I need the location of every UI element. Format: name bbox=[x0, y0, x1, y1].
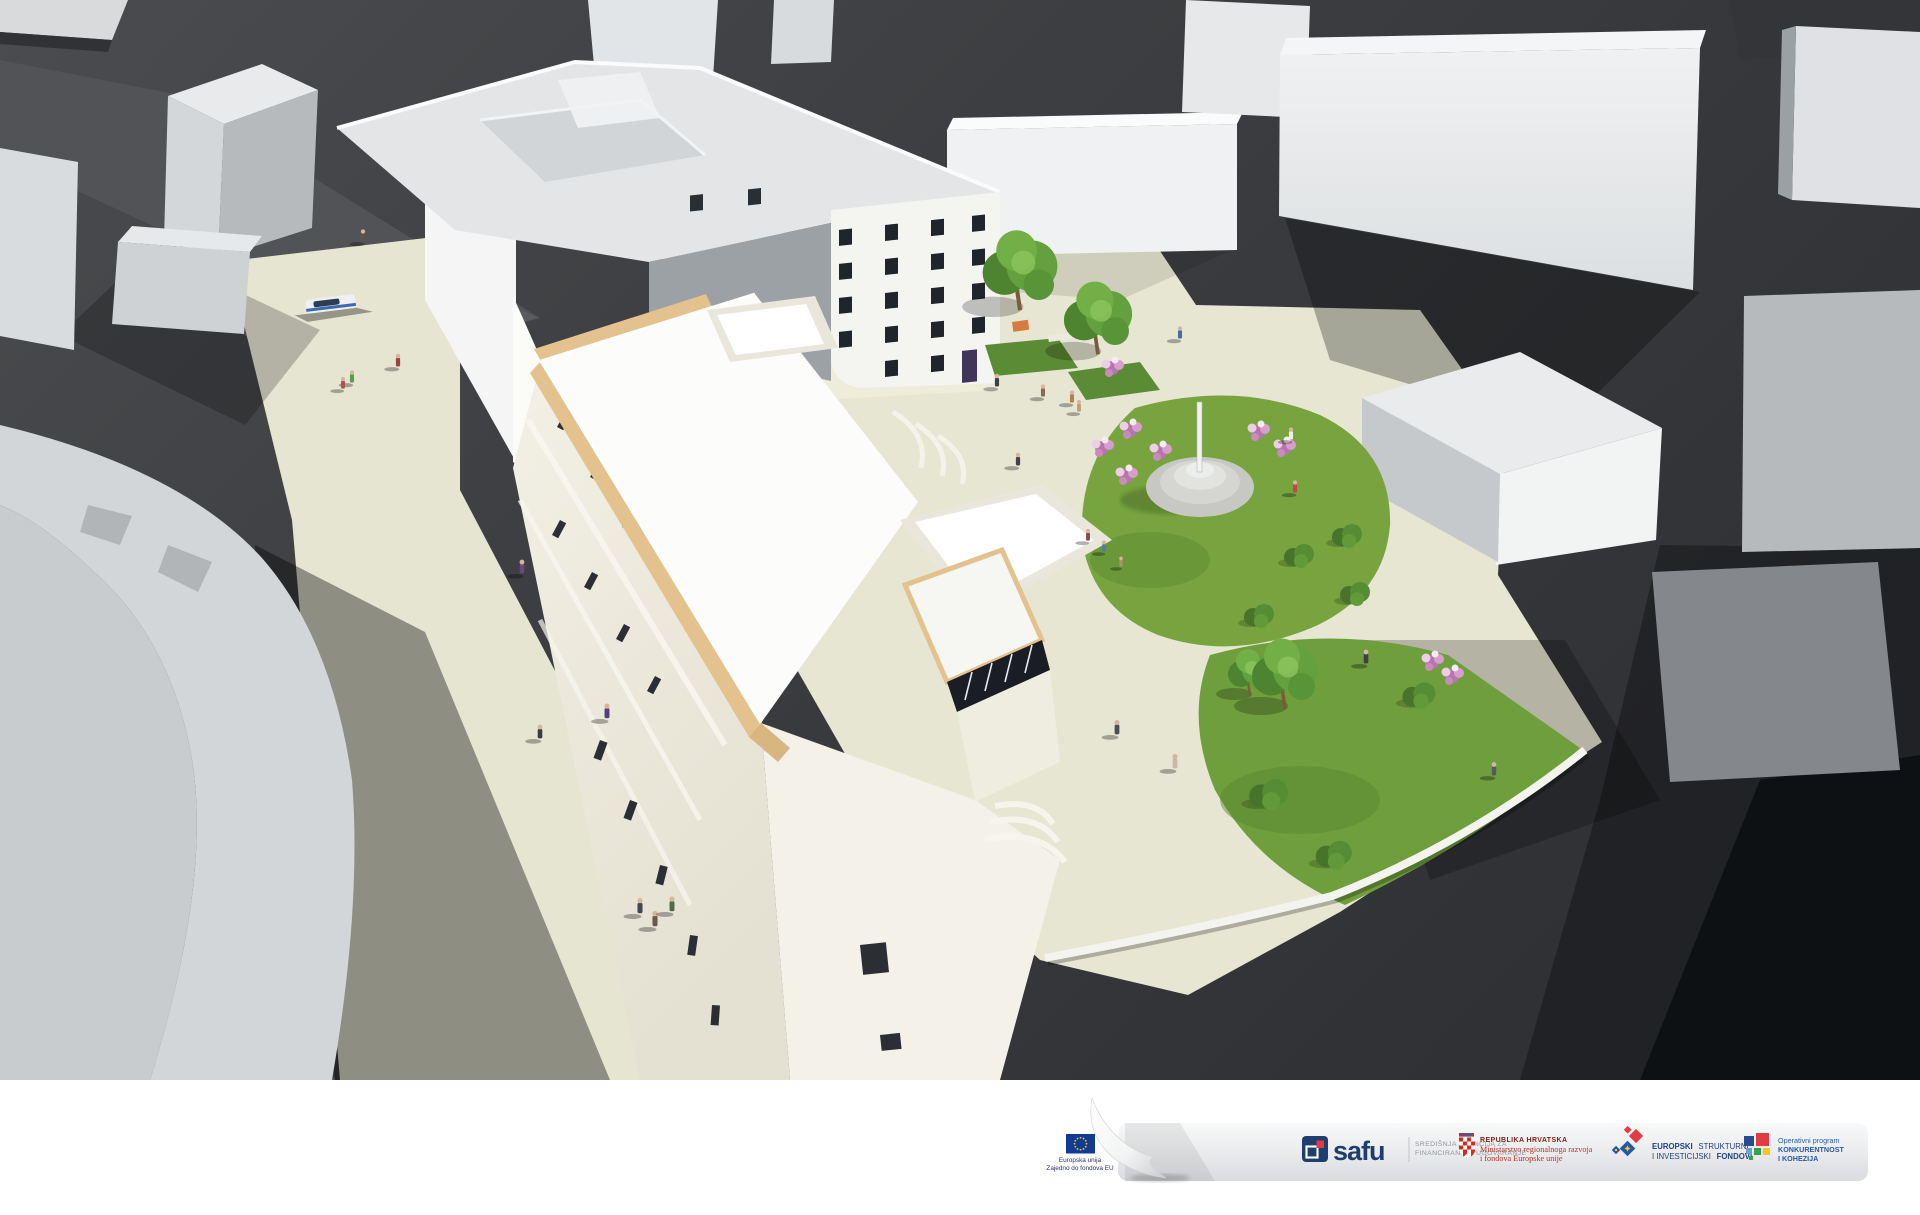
eu-line2: Zajedno do fondova EU bbox=[1046, 1165, 1114, 1172]
croatia-line3: i fondova Europske unije bbox=[1480, 1154, 1563, 1163]
render-canvas: Europska unija Zajedno do fondova EU saf… bbox=[0, 0, 1920, 1215]
esif-line1: EUROPSKI STRUKTURNI bbox=[1652, 1142, 1749, 1151]
opkk-line3: I KOHEZIJA bbox=[1778, 1154, 1818, 1163]
eu-line1: Europska unija bbox=[1059, 1157, 1102, 1164]
safu-wordmark: safu bbox=[1333, 1136, 1385, 1166]
esif-line1-bold: EUROPSKI bbox=[1652, 1142, 1693, 1151]
opkk-line1: Operativni program bbox=[1778, 1136, 1840, 1145]
render-scene bbox=[0, 0, 1920, 1080]
croatia-line2: Ministarstvo regionalnoga razvoja bbox=[1480, 1145, 1593, 1154]
entrance-door bbox=[962, 349, 977, 383]
croatia-line1: REPUBLIKA HRVATSKA bbox=[1480, 1137, 1567, 1144]
esif-line2-rest: I INVESTICIJSKI bbox=[1652, 1152, 1711, 1161]
opkk-line2: KONKURENTNOST bbox=[1778, 1145, 1844, 1154]
esif-line2: I INVESTICIJSKI FONDOVI bbox=[1652, 1152, 1752, 1161]
architectural-render-page: Europska unija Zajedno do fondova EU saf… bbox=[0, 0, 1920, 1215]
esif-line1-rest: STRUKTURNI bbox=[1698, 1142, 1748, 1151]
monument-pole bbox=[1197, 402, 1202, 472]
